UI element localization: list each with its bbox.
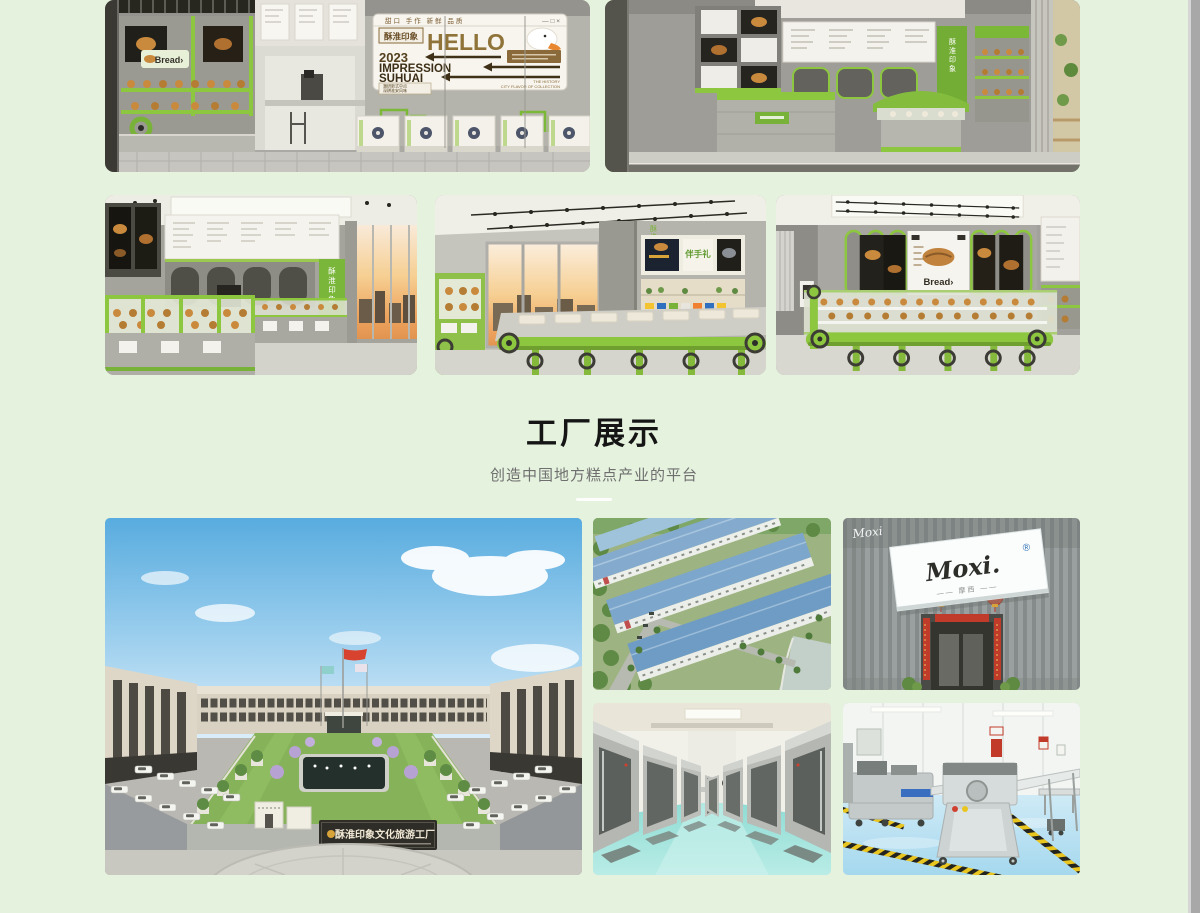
electrical-panel <box>857 729 881 755</box>
ceiling-grille <box>119 0 269 13</box>
back-display-counter <box>255 298 347 343</box>
gift-lightbox-band: 伴手礼 <box>641 235 745 275</box>
gift-sign-label: 伴手礼 <box>684 249 711 259</box>
factory-section-header: 工厂展示 创造中国地方糕点产业的平台 <box>0 415 1188 501</box>
billboard-footnote2: CITY FLAVOR OF COLLECTION <box>501 84 560 89</box>
bread-sign-label: Bread› <box>155 55 184 65</box>
brand-badge: 酥淮印象 <box>384 32 419 42</box>
front-display-counter <box>105 295 255 375</box>
section-title: 工厂展示 <box>0 415 1188 453</box>
section-divider <box>576 498 612 501</box>
menu-sheets <box>261 4 357 40</box>
couplet <box>923 618 930 680</box>
wall-sign <box>990 727 1003 735</box>
dark-poster-screens <box>105 203 161 277</box>
storefront-pillar <box>105 0 119 172</box>
mall-context <box>1053 0 1080 172</box>
vertical-brand-text: 酥淮印象 <box>949 37 957 74</box>
factory-photo-moxi-storefront: Moxi Moxi. ® —— 摩西 —— <box>843 518 1080 690</box>
red-flag-icon <box>344 649 367 661</box>
factory-sign-label: 酥淮印象文化旅游工厂 <box>335 828 435 841</box>
store-photo-interior-bread-wall: Bread› <box>776 195 1080 375</box>
store-photo-storefront-billboard: Bread› 甜口 手作 新鲜 品质 — □ × <box>105 0 590 172</box>
factory-photo-oven-room <box>593 703 831 875</box>
factory-photo-aerial <box>593 518 831 690</box>
display-table <box>873 91 969 152</box>
menu-board <box>783 22 935 62</box>
bread-shelf-unit <box>975 26 1029 122</box>
glass-display-case <box>804 290 1057 335</box>
crate-row <box>357 116 590 154</box>
hello-billboard: 甜口 手作 新鲜 品质 — □ × 酥淮印象 HELLO 2023 IMPRES… <box>373 14 567 94</box>
entrance <box>921 614 1003 690</box>
bread-sign: Bread› <box>141 50 189 68</box>
billboard-headline: HELLO <box>427 29 505 55</box>
fountain <box>299 754 389 792</box>
store-photo-storefront-counters: 酥淮印象 <box>605 0 1080 172</box>
bread-poster-label: Bread› <box>923 277 953 288</box>
store-photo-interior-corner-counter: 酥淮印象 <box>105 195 417 375</box>
factory-photo-campus: 酥淮印象文化旅游工厂 <box>105 518 582 875</box>
menu-board <box>165 215 339 262</box>
steel-shelf <box>843 743 853 803</box>
sunset-window <box>357 225 417 339</box>
window-controls-icon: — □ × <box>542 18 560 25</box>
cashier-counter <box>717 92 835 154</box>
scrollbar[interactable] <box>1188 0 1200 913</box>
poster-lightboxes <box>695 6 781 93</box>
billboard-tagline2: 深耕淮安风味 <box>383 87 407 93</box>
fire-extinguisher-box <box>991 739 1002 757</box>
store-photo-interior-pipe-counter: 酥淮印象 伴手礼 <box>435 195 766 375</box>
factory-photo-production-line <box>843 703 1080 875</box>
section-subtitle: 创造中国地方糕点产业的平台 <box>0 464 1188 485</box>
storefront-pillar <box>605 0 629 172</box>
scrollbar-thumb[interactable] <box>1191 0 1200 913</box>
billboard-tabs: 甜口 手作 新鲜 品质 <box>385 16 464 25</box>
page: Bread› 甜口 手作 新鲜 品质 — □ × <box>0 0 1200 913</box>
